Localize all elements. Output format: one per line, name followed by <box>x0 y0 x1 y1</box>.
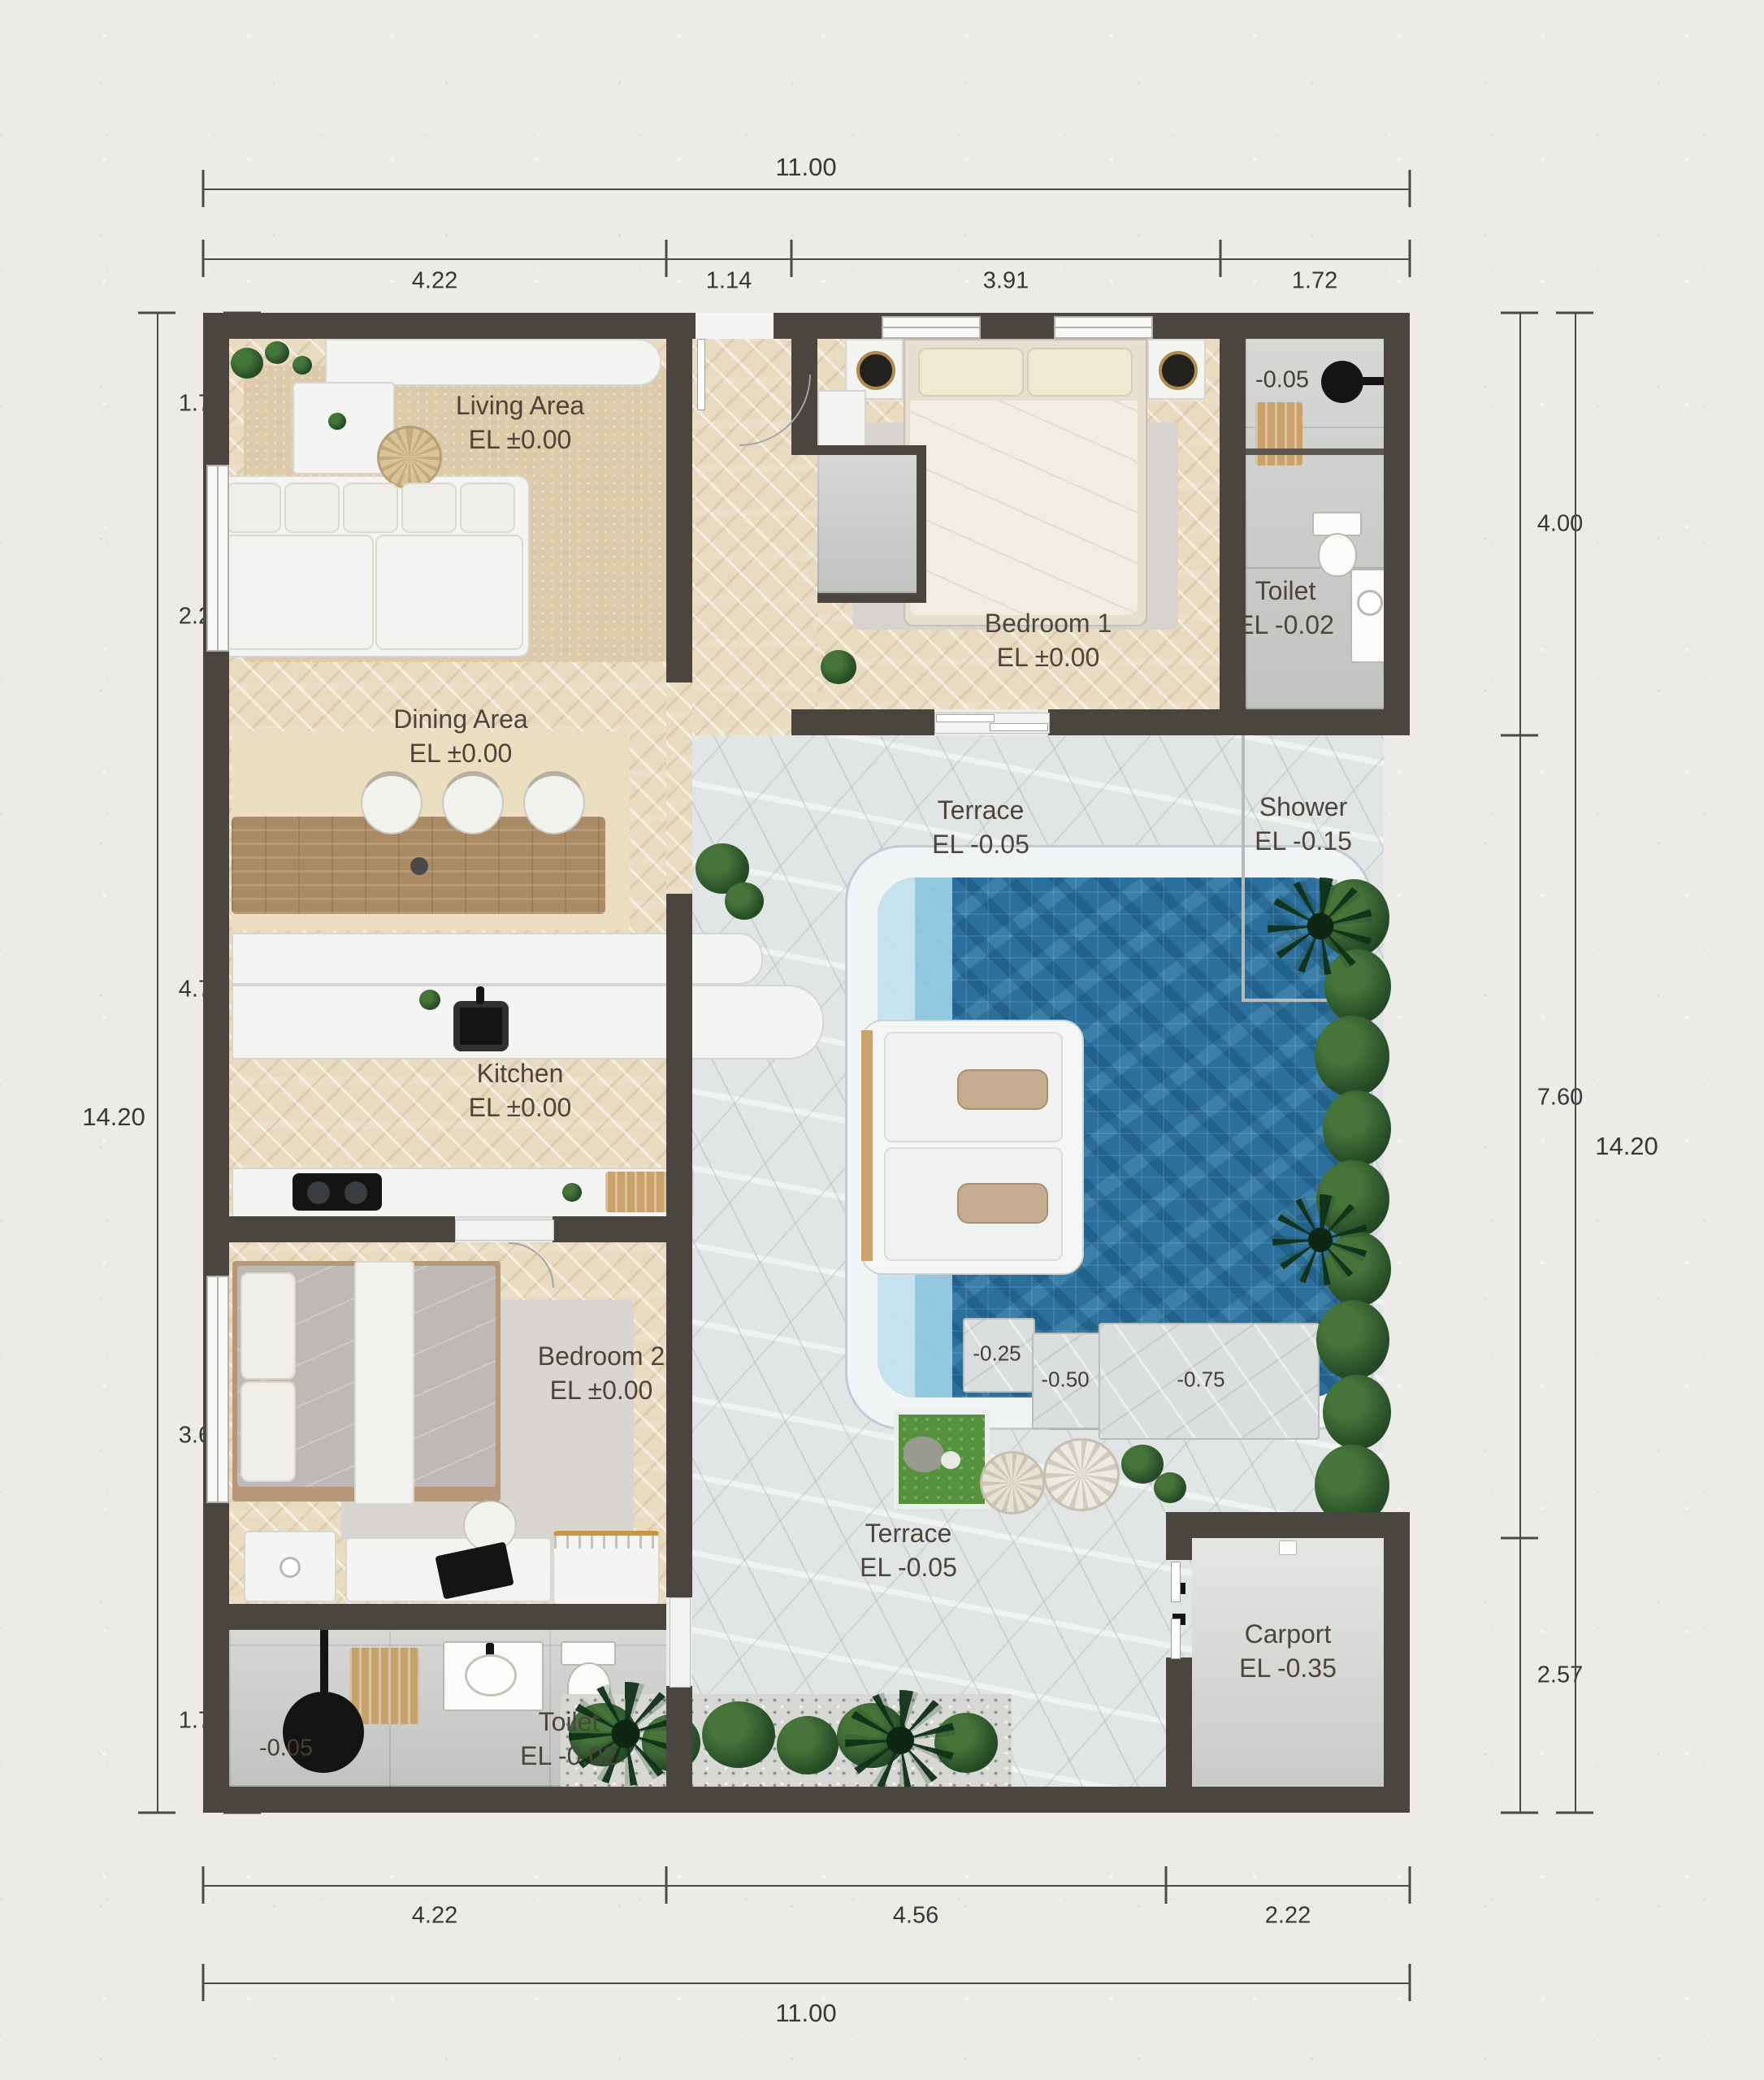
dim-top-seg-4: 1.72 <box>1292 268 1337 295</box>
room-label-toilet1: Toilet EL -0.02 <box>1237 574 1334 642</box>
terrace-corner-plant-b <box>725 882 764 920</box>
toilet1-mat <box>1255 402 1302 466</box>
room-name: Toilet <box>520 1705 618 1739</box>
level-mark-toilet2: -0.05 <box>259 1735 313 1762</box>
bedroom1-door-slab-a <box>936 714 995 722</box>
gate-leaf-a <box>1171 1562 1181 1602</box>
toilet1-divider <box>1246 448 1384 455</box>
living-pouf <box>377 426 442 489</box>
dim-left-total: 14.20 <box>82 1103 145 1132</box>
room-label-terrace-lower: Terrace EL -0.05 <box>860 1516 957 1584</box>
dim-bottom-seg-3: 2.22 <box>1265 1903 1311 1930</box>
sofa-pillow <box>284 483 340 533</box>
dim-line-bottom-segments <box>203 1885 1410 1887</box>
cooktop-burner-1 <box>307 1181 330 1204</box>
bedroom1-door-slab-b <box>990 723 1048 731</box>
window-bedroom2-west <box>206 1276 229 1503</box>
living-plant-3 <box>293 356 312 375</box>
room-name: Terrace <box>860 1516 957 1550</box>
wall-outer-bottom <box>203 1787 1410 1813</box>
room-elevation: EL ±0.00 <box>985 640 1112 674</box>
room-name: Living Area <box>456 388 584 422</box>
room-elevation: EL -0.02 <box>520 1739 618 1773</box>
dim-top-seg-3: 3.91 <box>983 268 1029 295</box>
gravel-palm-right <box>845 1690 956 1791</box>
wall-outer-right-carport <box>1384 1512 1410 1813</box>
shower-head-icon-toilet1 <box>1321 361 1363 403</box>
bedroom1-plant <box>821 650 856 684</box>
wall-bedroom2-east-stub <box>666 1686 692 1787</box>
planter-pebble <box>941 1451 960 1469</box>
room-label-carport: Carport EL -0.35 <box>1239 1617 1337 1685</box>
dim-line-right-segments <box>1519 313 1521 1813</box>
gate-leaf-b <box>1171 1618 1181 1659</box>
daybed-pillow-top <box>957 1069 1048 1110</box>
bedroom2-terrace-door <box>670 1597 691 1688</box>
dim-bottom-total: 11.00 <box>775 1999 836 2028</box>
window-bedroom1-north-left <box>882 316 981 339</box>
dim-bottom-seg-1: 4.22 <box>412 1903 457 1930</box>
kitchen-veg <box>562 1183 582 1202</box>
floor-passage-dining-terrace <box>666 682 692 894</box>
wicker-seat-small <box>980 1451 1045 1514</box>
wall-bedroom1-south-a <box>791 709 934 735</box>
bedroom2-dresser-knob <box>280 1557 301 1578</box>
room-name: Terrace <box>932 793 1029 827</box>
room-elevation: EL -0.05 <box>932 827 1029 861</box>
wall-kitchen-south-b <box>553 1216 692 1242</box>
bedroom1-lamp-right-icon <box>1159 351 1198 390</box>
kitchen-cooktop <box>293 1173 382 1211</box>
dim-line-top-segments <box>203 258 1410 260</box>
room-name: Bedroom 2 <box>538 1339 665 1373</box>
pool-palm-top <box>1268 877 1373 975</box>
dining-chair-3 <box>523 771 585 834</box>
dim-right-total: 14.20 <box>1595 1132 1658 1161</box>
room-label-toilet2: Toilet EL -0.02 <box>520 1705 618 1773</box>
toilet1-basin <box>1357 590 1383 616</box>
room-elevation: EL ±0.00 <box>469 1090 572 1124</box>
carport-bumper <box>1279 1540 1297 1555</box>
bedroom2-pillow-bottom <box>241 1381 296 1482</box>
window-living-west <box>206 465 229 652</box>
wall-toilet2-north <box>203 1604 666 1630</box>
floor-plan-canvas: -0.25 -0.50 -0.75 <box>0 0 1764 2080</box>
coffee-table-plant <box>328 413 346 430</box>
room-name: Shower <box>1255 790 1352 824</box>
room-label-bedroom1: Bedroom 1 EL ±0.00 <box>985 606 1112 674</box>
wall-bedroom1-south-b <box>1048 709 1220 735</box>
shower-divider-v <box>1242 735 1245 1002</box>
wall-bedroom2-east <box>666 1242 692 1597</box>
cooktop-burner-2 <box>345 1181 367 1204</box>
kitchen-herb <box>419 990 440 1010</box>
shower-arm-toilet1 <box>1359 377 1386 385</box>
dim-line-left-total <box>157 313 158 1813</box>
sofa-pillow <box>343 483 398 533</box>
wall-carport-west-b <box>1166 1657 1192 1787</box>
room-elevation: EL ±0.00 <box>456 422 584 457</box>
kitchen-bedroom2-door <box>455 1220 554 1241</box>
level-mark-025: -0.25 <box>973 1341 1021 1367</box>
dim-line-bottom-total <box>203 1982 1410 1984</box>
bedroom2-runner <box>354 1261 414 1505</box>
sofa-pillow <box>460 483 515 533</box>
room-label-dining: Dining Area EL ±0.00 <box>393 702 527 770</box>
living-credenza <box>325 339 661 386</box>
toilet2-basin <box>465 1654 517 1696</box>
room-elevation: EL -0.05 <box>860 1550 957 1584</box>
level-mark-toilet1: -0.05 <box>1255 367 1309 394</box>
room-name: Bedroom 1 <box>985 606 1112 640</box>
dim-top-seg-1: 4.22 <box>412 268 457 295</box>
room-elevation: EL -0.02 <box>1237 608 1334 642</box>
wall-carport-north <box>1166 1512 1410 1538</box>
living-plant-1 <box>231 348 263 379</box>
room-name: Kitchen <box>469 1056 572 1090</box>
wall-outer-right-toilet1 <box>1384 313 1410 735</box>
sofa-seat-right <box>375 535 523 650</box>
room-elevation: EL -0.35 <box>1239 1651 1337 1685</box>
bedroom1-duvet <box>910 401 1138 615</box>
sofa-pillow <box>226 483 281 533</box>
pool-palm-mid <box>1272 1194 1368 1285</box>
bedroom1-pillow-right <box>1027 348 1133 396</box>
planter-stone <box>904 1436 944 1472</box>
bedroom1-pillow-left <box>918 348 1024 396</box>
shower-pipe-toilet2 <box>320 1630 328 1701</box>
bedroom1-lamp-left-icon <box>856 351 895 390</box>
floor-wc-nook <box>817 445 926 603</box>
daybed-frame-wood <box>861 1030 873 1261</box>
room-name: Toilet <box>1237 574 1334 608</box>
kitchen-island <box>232 985 824 1059</box>
kitchen-faucet <box>476 986 484 1004</box>
wall-toilet1-south <box>1220 709 1410 735</box>
room-elevation: EL -0.15 <box>1255 824 1352 858</box>
level-mark-050: -0.50 <box>1041 1367 1089 1393</box>
dining-table-knot <box>410 857 428 875</box>
sofa-seat-left <box>224 535 374 650</box>
wall-kitchen-south-a <box>203 1216 455 1242</box>
room-elevation: EL ±0.00 <box>538 1373 665 1407</box>
living-plant-2 <box>265 341 289 364</box>
dim-line-right-total <box>1575 313 1576 1813</box>
room-label-kitchen: Kitchen EL ±0.00 <box>469 1056 572 1124</box>
toilet1-vanity <box>1350 569 1387 663</box>
toilet2-mat <box>349 1648 419 1724</box>
room-label-shower: Shower EL -0.15 <box>1255 790 1352 858</box>
kitchen-cutting-board <box>605 1172 675 1212</box>
dim-bottom-seg-2: 4.56 <box>893 1903 938 1930</box>
wall-carport-west-a <box>1166 1538 1192 1560</box>
kitchen-sink <box>453 1001 509 1051</box>
level-mark-075: -0.75 <box>1177 1367 1224 1393</box>
dining-chair-1 <box>361 771 423 834</box>
dim-top-seg-2: 1.14 <box>706 268 752 295</box>
bedroom2-pillow-top <box>241 1272 296 1380</box>
room-name: Carport <box>1239 1617 1337 1651</box>
wall-kitchen-terrace <box>666 894 692 1242</box>
wall-toilet1-west <box>1220 313 1246 735</box>
bedroom2-wardrobe <box>553 1531 660 1605</box>
wicker-seat-large <box>1043 1438 1120 1511</box>
room-elevation: EL ±0.00 <box>393 736 527 770</box>
dining-chair-2 <box>442 771 504 834</box>
room-label-bedroom2: Bedroom 2 EL ±0.00 <box>538 1339 665 1407</box>
dim-top-total: 11.00 <box>775 153 836 182</box>
window-bedroom1-north-right <box>1054 316 1153 339</box>
room-label-living: Living Area EL ±0.00 <box>456 388 584 457</box>
room-label-terrace-upper: Terrace EL -0.05 <box>932 793 1029 861</box>
sofa-pillow <box>401 483 457 533</box>
room-name: Dining Area <box>393 702 527 736</box>
daybed-pillow-bottom <box>957 1183 1048 1224</box>
dim-line-top-total <box>203 188 1410 190</box>
terrace-plant-2 <box>1154 1472 1186 1503</box>
